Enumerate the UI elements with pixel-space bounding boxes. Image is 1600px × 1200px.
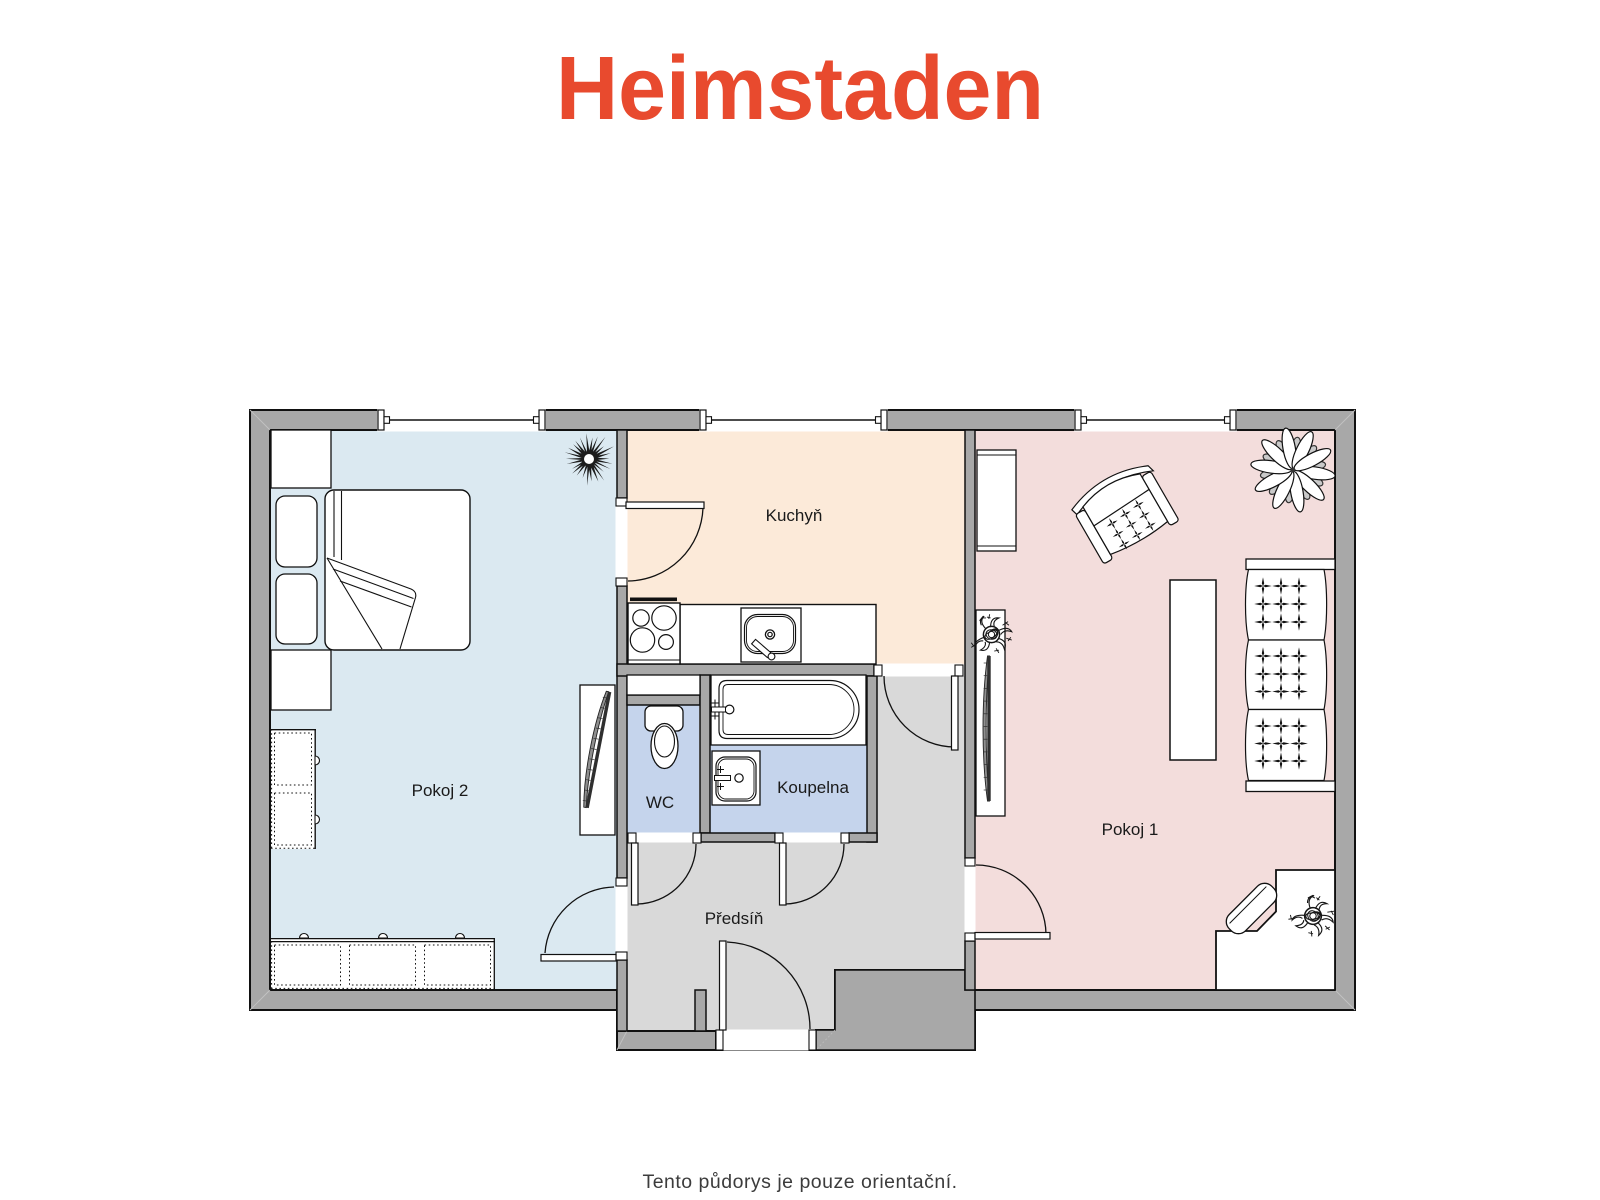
svg-text:Koupelna: Koupelna	[777, 778, 849, 797]
svg-text:Předsíň: Předsíň	[705, 909, 764, 928]
svg-text:WC: WC	[646, 793, 674, 812]
svg-text:Kuchyň: Kuchyň	[766, 506, 823, 525]
svg-text:Pokoj 1: Pokoj 1	[1102, 820, 1159, 839]
svg-text:Pokoj 2: Pokoj 2	[412, 781, 469, 800]
